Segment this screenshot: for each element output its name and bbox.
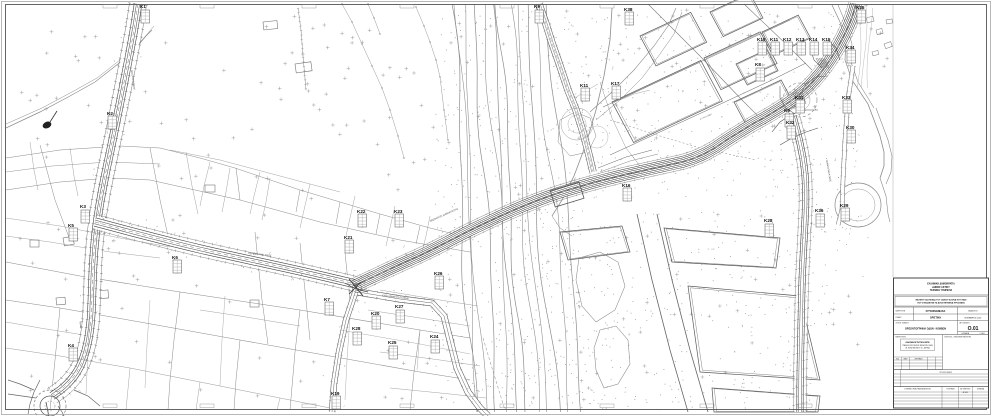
svg-text:K6: K6 <box>172 255 178 260</box>
svg-text:K13: K13 <box>796 37 805 42</box>
svg-text:K5: K5 <box>68 223 74 228</box>
svg-text:ΔΗΜΟΣ ΑΚΤΙΟΥ: ΔΗΜΟΣ ΑΚΤΙΟΥ <box>932 286 950 289</box>
svg-text:K33: K33 <box>842 95 851 100</box>
svg-text:K8: K8 <box>755 62 761 67</box>
svg-text:K36: K36 <box>815 208 824 213</box>
svg-text:ΗΜΕΡ: ΗΜΕΡ <box>903 358 907 360</box>
svg-text:K23: K23 <box>394 209 403 214</box>
svg-text:ΑΝΑΔΟΧΟΣ: ΑΝΑΔΟΧΟΣ <box>968 310 977 313</box>
svg-text:K7: K7 <box>324 297 330 302</box>
svg-text:K19: K19 <box>331 391 340 396</box>
svg-text:ΟΔΟΜΕΛΕΤΗΤΙΚΗ ΕΠΕ: ΟΔΟΜΕΛΕΤΗΤΙΚΗ ΕΠΕ <box>905 342 930 344</box>
svg-text:K21: K21 <box>344 235 353 240</box>
svg-text:ΟΡΙΖΟΝΤΙΟΓΡΑΦΙΑ ΟΔΩΝ - ΚΟΜΒΩΝ: ΟΡΙΖΟΝΤΙΟΓΡΑΦΙΑ ΟΔΩΝ - ΚΟΜΒΩΝ <box>905 328 946 331</box>
svg-text:K30: K30 <box>846 125 855 130</box>
svg-text:ΕΛΛΗΝΙΚΗ ΔΗΜΟΚΡΑΤΙΑ: ΕΛΛΗΝΙΚΗ ΔΗΜΟΚΡΑΤΙΑ <box>927 283 955 286</box>
svg-text:ΚΑΤΗΓΟΡΙΑ: ΚΑΤΗΓΟΡΙΑ <box>896 310 906 313</box>
svg-text:1:1000: 1:1000 <box>980 333 985 335</box>
svg-text:K35: K35 <box>856 5 865 10</box>
svg-text:K20: K20 <box>371 311 380 316</box>
svg-text:K28: K28 <box>764 218 773 223</box>
svg-text:K32: K32 <box>786 120 795 125</box>
svg-text:K38: K38 <box>624 7 633 12</box>
svg-text:K28: K28 <box>352 326 361 331</box>
svg-text:ΜΕΛΕΤΗ ΟΔΟΠΟΙΙΑΣ ΤΟΥ ΟΔΙΚΟΥ ΑΞ: ΜΕΛΕΤΗ ΟΔΟΠΟΙΙΑΣ ΤΟΥ ΟΔΙΚΟΥ ΑΞΟΝΑ ΠΟΥ ΠΑ… <box>916 299 967 302</box>
svg-text:K17: K17 <box>611 81 620 86</box>
svg-text:K11: K11 <box>770 37 779 42</box>
svg-text:K16: K16 <box>622 183 631 188</box>
svg-text:K26: K26 <box>434 271 443 276</box>
svg-text:K31: K31 <box>795 95 804 100</box>
svg-text:K10: K10 <box>757 37 766 42</box>
svg-text:K22: K22 <box>357 209 366 214</box>
svg-text:K27: K27 <box>395 304 404 309</box>
svg-text:K2: K2 <box>107 111 113 116</box>
svg-text:ΣΤΑΔΙΟ: ΣΤΑΔΙΟ <box>896 316 903 319</box>
svg-text:ΠΟΥ ΣΥΝΔΕΕΙ ΜΕ ΤΑ ΑΠΟΣΤΕΓΜΕΝΑ: ΠΟΥ ΣΥΝΔΕΕΙ ΜΕ ΤΑ ΑΠΟΣΤΕΓΜΕΝΑ ΠΡΟΣΦΑΤΑ <box>917 302 965 305</box>
svg-text:K11: K11 <box>580 83 589 88</box>
svg-text:K24: K24 <box>430 334 439 339</box>
svg-text:ΣΥΓΚΟΙΝΩΝΙΑΚΑ: ΣΥΓΚΟΙΝΩΝΙΑΚΑ <box>926 310 946 313</box>
svg-text:ΤΡΟΠΟΠΟΙΗΣΕΙΣ: ΤΡΟΠΟΠΟΙΗΣΕΙΣ <box>939 372 952 374</box>
svg-text:ΝΟΕΜΒΡΙΟΣ 2011: ΝΟΕΜΒΡΙΟΣ 2011 <box>965 318 983 320</box>
svg-text:K12: K12 <box>783 37 792 42</box>
svg-text:ΟΡΙΣΤΙΚΗ: ΟΡΙΣΤΙΚΗ <box>930 317 941 320</box>
svg-text:K25: K25 <box>388 340 397 345</box>
svg-text:K14: K14 <box>809 37 818 42</box>
svg-text:K9: K9 <box>784 108 790 113</box>
svg-text:ΕΛΕΓΧΟΣ - ΕΠΙΒΛΕΨΗ ΜΕΛΕΤΗΣ: ΕΛΕΓΧΟΣ - ΕΠΙΒΛΕΨΗ ΜΕΛΕΤΗΣ <box>945 337 972 339</box>
svg-text:K29: K29 <box>840 203 849 208</box>
svg-text:ΤΕΧΝΙΚΗ ΥΠΗΡΕΣΙΑ: ΤΕΧΝΙΚΗ ΥΠΗΡΕΣΙΑ <box>930 289 953 292</box>
svg-text:Ο.01: Ο.01 <box>968 326 979 332</box>
svg-text:ΤΙΤΛΟΣ ΣΧΕΔΙΟΥ: ΤΙΤΛΟΣ ΣΧΕΔΙΟΥ <box>896 322 910 325</box>
svg-text:K3: K3 <box>80 204 86 209</box>
svg-text:ΚΛΙΜΑΚΑ: ΚΛΙΜΑΚΑ <box>962 332 970 335</box>
svg-text:K34: K34 <box>846 45 855 50</box>
svg-text:K15: K15 <box>822 37 831 42</box>
svg-text:K4: K4 <box>68 343 74 348</box>
svg-text:ΜΕΛΕΤΗΤΗΣ: ΜΕΛΕΤΗΤΗΣ <box>896 337 906 339</box>
svg-text:ΑΡ. ΣΧΕΔΙΟΥ: ΑΡ. ΣΧΕΔΙΟΥ <box>960 322 971 325</box>
